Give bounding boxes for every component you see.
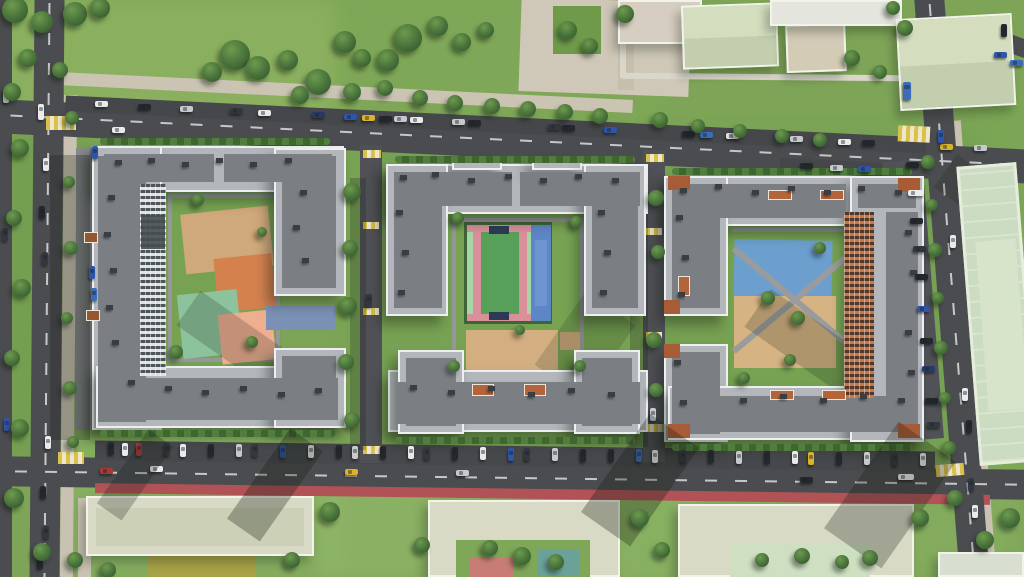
tree bbox=[652, 112, 668, 128]
tree bbox=[6, 210, 22, 226]
kindergarten-court bbox=[148, 556, 256, 577]
tree bbox=[344, 412, 360, 428]
tree bbox=[648, 190, 664, 206]
tree bbox=[353, 49, 371, 67]
car bbox=[230, 108, 243, 114]
roof-unit bbox=[608, 392, 615, 397]
car bbox=[917, 306, 930, 312]
roof-unit bbox=[860, 394, 867, 399]
car bbox=[452, 119, 465, 125]
tree bbox=[484, 98, 500, 114]
tree bbox=[976, 531, 994, 549]
roof-dark-patch bbox=[282, 156, 336, 288]
car bbox=[180, 106, 193, 112]
terracotta-roof-patch bbox=[664, 344, 680, 358]
car bbox=[925, 398, 938, 404]
tree bbox=[513, 547, 531, 565]
tree bbox=[559, 21, 577, 39]
tree bbox=[3, 83, 21, 101]
tree bbox=[932, 292, 944, 304]
car bbox=[966, 420, 972, 433]
car bbox=[950, 235, 956, 248]
roof-unit bbox=[752, 190, 759, 195]
tree bbox=[897, 20, 913, 36]
tree bbox=[592, 108, 608, 124]
tree bbox=[377, 80, 393, 96]
roof-unit bbox=[680, 400, 687, 405]
car bbox=[938, 130, 944, 143]
car bbox=[800, 477, 813, 483]
roof-unit bbox=[895, 190, 902, 195]
roof-unit bbox=[858, 186, 865, 191]
tree bbox=[305, 69, 331, 95]
car bbox=[92, 146, 98, 159]
tree bbox=[63, 2, 87, 26]
building-shadow bbox=[350, 178, 366, 450]
roof-unit bbox=[112, 340, 119, 345]
tree bbox=[169, 345, 183, 359]
speed-bump bbox=[646, 154, 664, 162]
car bbox=[40, 486, 46, 499]
hedge-row bbox=[672, 168, 912, 175]
car bbox=[410, 117, 423, 123]
roof-unit bbox=[410, 385, 417, 390]
entrance-canopy bbox=[768, 190, 792, 200]
car bbox=[380, 446, 386, 459]
car bbox=[962, 388, 968, 401]
sports-court-goal bbox=[489, 226, 509, 234]
tree bbox=[939, 392, 951, 404]
car bbox=[790, 136, 803, 142]
car bbox=[974, 145, 987, 151]
building-southeast-small bbox=[938, 552, 1024, 577]
tree bbox=[33, 543, 51, 561]
car bbox=[682, 131, 695, 137]
car bbox=[508, 448, 514, 461]
roof-dark-patch bbox=[104, 378, 338, 420]
speed-bump bbox=[363, 150, 381, 158]
car bbox=[452, 447, 458, 460]
tree bbox=[246, 56, 270, 80]
roof-unit bbox=[788, 186, 795, 191]
roof-unit bbox=[540, 178, 547, 183]
car bbox=[940, 144, 953, 150]
car bbox=[972, 505, 978, 518]
car bbox=[862, 140, 875, 146]
aerial-residential-render bbox=[0, 0, 1024, 577]
tree bbox=[947, 490, 963, 506]
roof-unit bbox=[110, 268, 117, 273]
tree bbox=[338, 354, 354, 370]
car bbox=[913, 246, 926, 252]
roof-unit bbox=[396, 210, 403, 215]
car bbox=[1010, 60, 1023, 66]
car bbox=[236, 444, 242, 457]
car bbox=[379, 116, 392, 122]
tree bbox=[691, 119, 705, 133]
tree bbox=[784, 354, 796, 366]
roof-unit bbox=[300, 190, 307, 195]
roof-unit bbox=[293, 225, 300, 230]
car bbox=[42, 252, 48, 265]
tree bbox=[320, 502, 340, 522]
roof-unit bbox=[682, 255, 689, 260]
tree bbox=[19, 49, 37, 67]
roof-unit bbox=[505, 174, 512, 179]
terracotta-roof-patch bbox=[664, 300, 680, 314]
car bbox=[424, 447, 430, 460]
roof-dark-patch bbox=[394, 172, 442, 308]
tree bbox=[246, 336, 258, 348]
crosswalk-tr bbox=[898, 125, 931, 143]
tree bbox=[284, 552, 300, 568]
tree bbox=[192, 194, 204, 206]
basketball-court-marks bbox=[535, 240, 547, 306]
roof-unit bbox=[128, 380, 135, 385]
roof-unit bbox=[678, 292, 685, 297]
sports-court-lane bbox=[473, 225, 481, 321]
tree bbox=[11, 139, 29, 157]
roof-dark-patch bbox=[582, 358, 632, 426]
roof-unit bbox=[905, 330, 912, 335]
car bbox=[548, 124, 561, 130]
car bbox=[38, 104, 44, 120]
roof-unit bbox=[148, 158, 155, 163]
car bbox=[108, 442, 114, 455]
tree bbox=[31, 11, 53, 33]
tree bbox=[570, 216, 582, 228]
tree bbox=[515, 325, 525, 335]
tree bbox=[61, 312, 73, 324]
tower-facade-dark-band bbox=[141, 215, 165, 249]
tree bbox=[448, 360, 460, 372]
tree bbox=[343, 83, 361, 101]
roof-unit bbox=[528, 392, 535, 397]
crosswalk-bl bbox=[58, 452, 84, 464]
tree bbox=[52, 62, 68, 78]
tree bbox=[928, 243, 942, 257]
car bbox=[708, 450, 714, 463]
tree bbox=[257, 227, 267, 237]
tree bbox=[886, 1, 900, 15]
tree bbox=[557, 104, 573, 120]
courtyard-path bbox=[732, 228, 856, 232]
tree bbox=[631, 509, 649, 527]
roof-unit bbox=[400, 175, 407, 180]
tree bbox=[520, 101, 536, 117]
tree bbox=[63, 176, 75, 188]
car bbox=[43, 526, 49, 539]
sports-court-green bbox=[481, 232, 519, 314]
tree bbox=[942, 441, 956, 455]
car bbox=[2, 228, 8, 241]
car bbox=[312, 112, 325, 118]
car bbox=[800, 163, 813, 169]
roof-unit bbox=[680, 188, 687, 193]
tree bbox=[202, 62, 222, 82]
tree bbox=[13, 279, 31, 297]
car bbox=[258, 110, 271, 116]
tree bbox=[651, 245, 665, 259]
roof-unit bbox=[568, 388, 575, 393]
tree bbox=[453, 33, 471, 51]
tree bbox=[100, 562, 116, 577]
roof-unit bbox=[612, 178, 619, 183]
hedge-row bbox=[395, 156, 635, 163]
car bbox=[362, 115, 375, 121]
tree bbox=[873, 65, 887, 79]
car bbox=[830, 165, 843, 171]
roof-unit bbox=[780, 394, 787, 399]
roof-unit bbox=[676, 215, 683, 220]
building-north-white bbox=[770, 0, 902, 26]
car bbox=[45, 436, 51, 449]
roof-unit bbox=[240, 386, 247, 391]
roof-unit bbox=[715, 184, 722, 189]
truck bbox=[903, 82, 911, 100]
car bbox=[920, 338, 933, 344]
roof-unit bbox=[250, 162, 257, 167]
car bbox=[4, 418, 10, 431]
tree bbox=[616, 5, 634, 23]
roof-unit bbox=[674, 360, 681, 365]
hedge-row bbox=[395, 437, 635, 444]
car bbox=[91, 288, 97, 301]
car bbox=[39, 206, 45, 219]
car bbox=[927, 422, 940, 428]
car bbox=[858, 166, 871, 172]
car bbox=[95, 101, 108, 107]
tree bbox=[582, 38, 598, 54]
entrance-canopy bbox=[84, 232, 98, 243]
car bbox=[604, 127, 617, 133]
speed-bump bbox=[646, 228, 662, 235]
courtyard-path bbox=[168, 194, 278, 198]
tree bbox=[339, 297, 357, 315]
tree bbox=[65, 111, 79, 125]
car bbox=[352, 446, 358, 459]
playground-blue-west bbox=[266, 306, 336, 330]
hedge-row bbox=[100, 138, 330, 145]
tree bbox=[67, 436, 79, 448]
roof-unit bbox=[315, 388, 322, 393]
tree bbox=[791, 311, 805, 325]
car bbox=[838, 139, 851, 145]
sports-court-goal bbox=[489, 312, 509, 320]
roof-unit bbox=[106, 305, 113, 310]
tree bbox=[761, 291, 775, 305]
roof-dark-patch bbox=[592, 172, 638, 308]
tower-facade-west bbox=[140, 184, 166, 376]
tree bbox=[835, 555, 849, 569]
car bbox=[562, 125, 575, 131]
tree bbox=[646, 332, 662, 348]
tree bbox=[755, 553, 769, 567]
car bbox=[608, 449, 614, 462]
tree bbox=[67, 552, 83, 568]
tree bbox=[278, 50, 298, 70]
car bbox=[922, 366, 935, 372]
car bbox=[552, 448, 558, 461]
roof-unit bbox=[108, 195, 115, 200]
tree bbox=[63, 381, 77, 395]
roof-unit bbox=[575, 174, 582, 179]
tree bbox=[844, 50, 860, 66]
entrance-canopy bbox=[86, 310, 100, 321]
roof-unit bbox=[898, 398, 905, 403]
sports-court-lane bbox=[519, 225, 527, 321]
tree bbox=[911, 509, 929, 527]
car bbox=[908, 190, 924, 196]
tree bbox=[921, 155, 935, 169]
roof-unit bbox=[302, 258, 309, 263]
car bbox=[122, 443, 128, 456]
car bbox=[700, 132, 713, 138]
car bbox=[524, 448, 530, 461]
roof-unit bbox=[905, 230, 912, 235]
roof-unit bbox=[115, 160, 122, 165]
car bbox=[968, 478, 974, 491]
courtyard-path bbox=[168, 194, 172, 362]
tree bbox=[926, 199, 938, 211]
car bbox=[408, 446, 414, 459]
building-north-small bbox=[785, 23, 847, 73]
tree bbox=[574, 360, 586, 372]
tree bbox=[452, 212, 464, 224]
car bbox=[994, 52, 1007, 58]
car bbox=[208, 444, 214, 457]
tree bbox=[447, 95, 463, 111]
roof-dark-patch bbox=[676, 396, 914, 432]
car bbox=[366, 294, 372, 307]
roof-unit bbox=[604, 250, 611, 255]
tree bbox=[814, 242, 826, 254]
tree bbox=[654, 542, 670, 558]
tree bbox=[343, 183, 361, 201]
roof-unit bbox=[488, 386, 495, 391]
tree bbox=[934, 341, 948, 355]
tree bbox=[394, 24, 422, 52]
car bbox=[345, 469, 358, 475]
roof-unit bbox=[908, 370, 915, 375]
car bbox=[112, 127, 125, 133]
roof-unit bbox=[600, 290, 607, 295]
roof-unit bbox=[182, 162, 189, 167]
tree bbox=[342, 240, 358, 256]
car bbox=[100, 468, 113, 474]
car bbox=[456, 470, 469, 476]
roof-unit bbox=[216, 158, 223, 163]
roof-unit bbox=[202, 390, 209, 395]
tree bbox=[813, 133, 827, 147]
roof-unit bbox=[398, 290, 405, 295]
roof-unit bbox=[104, 232, 111, 237]
tree bbox=[482, 540, 498, 556]
tree bbox=[64, 241, 78, 255]
tree bbox=[775, 129, 789, 143]
car bbox=[792, 451, 798, 464]
roof-unit bbox=[432, 172, 439, 177]
building-shadow bbox=[50, 155, 90, 440]
car bbox=[736, 451, 742, 464]
car bbox=[336, 445, 342, 458]
roof-unit bbox=[285, 158, 292, 163]
roof-unit bbox=[468, 178, 475, 183]
tree bbox=[862, 550, 878, 566]
tree bbox=[377, 49, 399, 71]
car bbox=[808, 452, 814, 465]
car bbox=[468, 120, 481, 126]
car bbox=[252, 444, 258, 457]
tower-facade-east bbox=[844, 212, 874, 398]
car bbox=[910, 218, 923, 224]
tree bbox=[11, 419, 29, 437]
tree bbox=[4, 488, 24, 508]
car bbox=[138, 104, 151, 110]
car bbox=[915, 274, 928, 280]
roof-unit bbox=[598, 210, 605, 215]
building-north-gabled bbox=[681, 2, 779, 69]
roof-unit bbox=[820, 398, 827, 403]
tree bbox=[414, 537, 430, 553]
tree bbox=[478, 22, 494, 38]
tree bbox=[1000, 508, 1020, 528]
car bbox=[480, 447, 486, 460]
tree bbox=[412, 90, 428, 106]
car bbox=[906, 162, 919, 168]
tree bbox=[428, 16, 448, 36]
car bbox=[836, 452, 842, 465]
tree bbox=[794, 548, 810, 564]
car bbox=[764, 451, 770, 464]
building-northeast-large bbox=[896, 13, 1017, 111]
roof-unit bbox=[448, 390, 455, 395]
car bbox=[1001, 24, 1007, 37]
car bbox=[394, 116, 407, 122]
car bbox=[580, 449, 586, 462]
roof-unit bbox=[824, 190, 831, 195]
car bbox=[344, 114, 357, 120]
kindergarten-pink-pavilion bbox=[470, 558, 514, 577]
car bbox=[43, 158, 49, 171]
roof-unit bbox=[740, 398, 747, 403]
tree bbox=[738, 372, 750, 384]
car bbox=[89, 266, 95, 279]
tree bbox=[733, 124, 747, 138]
tree bbox=[334, 31, 356, 53]
roof-unit bbox=[165, 386, 172, 391]
car bbox=[180, 444, 186, 457]
roof-unit bbox=[278, 392, 285, 397]
tree bbox=[4, 350, 20, 366]
tree bbox=[291, 86, 309, 104]
tree bbox=[548, 554, 564, 570]
tree bbox=[649, 383, 663, 397]
roof-unit bbox=[402, 250, 409, 255]
